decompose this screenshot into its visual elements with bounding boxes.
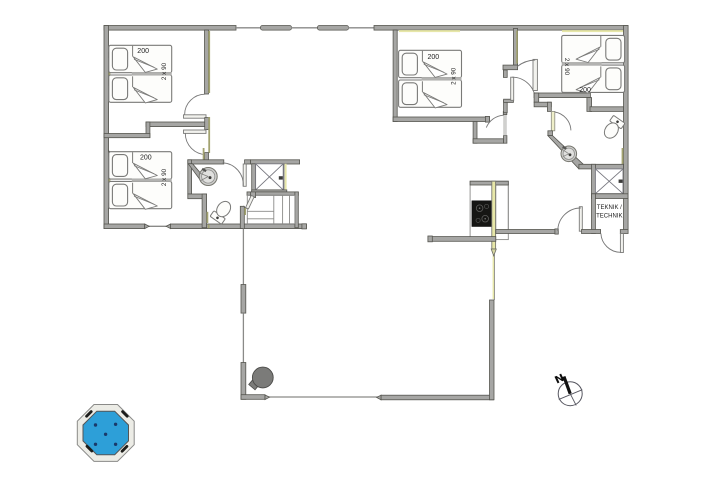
svg-text:2 x 90: 2 x 90 [161, 62, 168, 80]
svg-text:TECHNIK: TECHNIK [596, 214, 622, 220]
svg-text:TEKNIK /: TEKNIK / [597, 205, 622, 211]
svg-text:200: 200 [140, 155, 152, 162]
svg-text:200: 200 [428, 54, 440, 61]
svg-text:200: 200 [579, 87, 591, 94]
svg-text:2 x 90: 2 x 90 [451, 67, 458, 85]
svg-text:200: 200 [137, 48, 149, 55]
svg-text:2 x 90: 2 x 90 [161, 168, 168, 186]
svg-text:2 x 90: 2 x 90 [563, 58, 570, 76]
